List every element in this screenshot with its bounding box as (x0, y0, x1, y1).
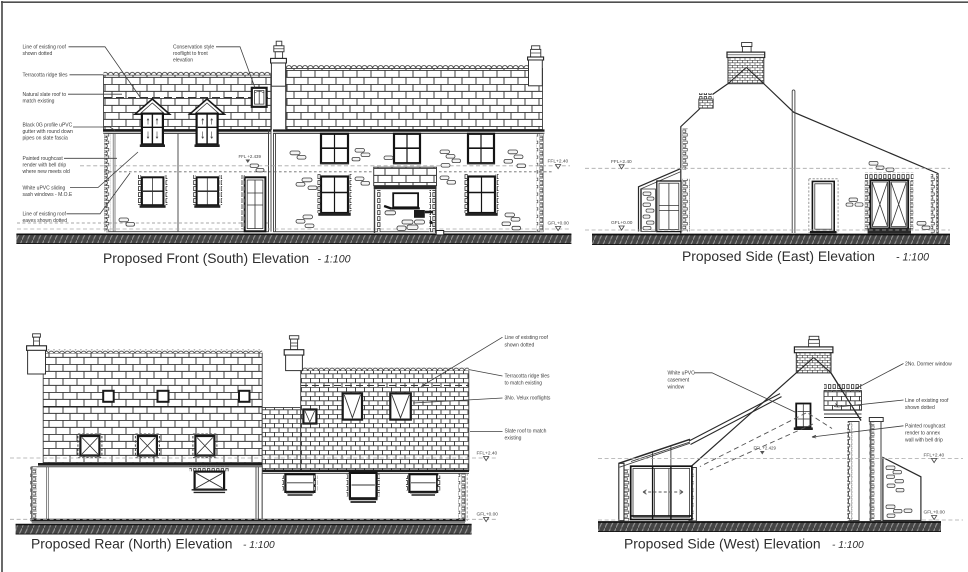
svg-text:Natural slate roof to: Natural slate roof to (23, 92, 67, 98)
svg-text:GFL+0.00: GFL+0.00 (611, 220, 633, 226)
svg-text:FFL+2.40: FFL+2.40 (611, 159, 632, 165)
svg-text:Line of existing roof: Line of existing roof (23, 45, 67, 51)
svg-text:shown dotted: shown dotted (905, 405, 935, 411)
svg-text:FFL +2.439: FFL +2.439 (239, 154, 262, 159)
svg-text:Line of existing roof: Line of existing roof (505, 335, 549, 341)
svg-text:window: window (668, 385, 685, 391)
svg-text:FFL+2.40: FFL+2.40 (924, 453, 945, 459)
svg-text:GFL+0.00: GFL+0.00 (477, 512, 499, 518)
svg-text:Proposed Rear (North) Elevatio: Proposed Rear (North) Elevation (31, 536, 233, 552)
svg-text:rooflight to front: rooflight to front (173, 51, 208, 57)
svg-text:Terracotta ridge tiles: Terracotta ridge tiles (23, 73, 69, 79)
svg-text:sash windows - M.O.E: sash windows - M.O.E (23, 192, 73, 198)
svg-text:GFL+0.00: GFL+0.00 (548, 221, 570, 227)
svg-text:eaves shown dotted: eaves shown dotted (23, 218, 68, 224)
svg-text:render with bell drip: render with bell drip (23, 163, 67, 169)
svg-text:Conservation style: Conservation style (173, 45, 214, 51)
svg-text:match existing: match existing (23, 99, 55, 105)
svg-text:FFL+2.40: FFL+2.40 (548, 159, 569, 165)
svg-text:- 1:100: - 1:100 (896, 252, 929, 264)
svg-text:Proposed Side (West) Elevation: Proposed Side (West) Elevation (624, 536, 821, 552)
svg-text:3No. Velux rooflights: 3No. Velux rooflights (505, 396, 551, 402)
svg-text:render to annex: render to annex (905, 431, 941, 437)
svg-text:shown dotted: shown dotted (23, 51, 53, 57)
svg-text:White uPVC sliding: White uPVC sliding (23, 186, 66, 192)
svg-text:- 1:100: - 1:100 (243, 540, 275, 551)
svg-text:shown dotted: shown dotted (505, 343, 535, 349)
svg-text:- 1:100: - 1:100 (832, 540, 864, 551)
svg-text:FFL +2.429: FFL +2.429 (754, 446, 777, 451)
svg-text:Line of existing roof: Line of existing roof (905, 398, 949, 404)
svg-text:existing: existing (505, 436, 522, 442)
svg-text:Proposed Side (East) Elevation: Proposed Side (East) Elevation (682, 248, 875, 264)
svg-text:gutter with round down: gutter with round down (23, 129, 74, 135)
svg-text:White uPVC: White uPVC (668, 371, 696, 377)
svg-text:casement: casement (668, 378, 690, 384)
svg-text:Black 0G profile uPVC: Black 0G profile uPVC (23, 123, 73, 129)
svg-text:FFL+2.40: FFL+2.40 (477, 451, 498, 457)
svg-text:Slate roof to match: Slate roof to match (505, 429, 547, 435)
svg-text:elevation: elevation (173, 58, 193, 64)
svg-text:where new meets old: where new meets old (23, 169, 70, 175)
svg-text:wall with bell drip: wall with bell drip (905, 438, 943, 444)
svg-text:Painted roughcast: Painted roughcast (905, 424, 946, 430)
svg-text:2No. Dormer window: 2No. Dormer window (905, 362, 952, 368)
svg-text:- 1:100: - 1:100 (318, 254, 351, 266)
svg-text:pipes on slate fascia: pipes on slate fascia (23, 136, 69, 142)
svg-text:Painted roughcast: Painted roughcast (23, 156, 64, 162)
svg-text:GFL+0.00: GFL+0.00 (924, 510, 946, 516)
svg-text:Terracotta ridge tiles: Terracotta ridge tiles (505, 374, 551, 380)
svg-text:to match existing: to match existing (505, 381, 543, 387)
svg-text:Proposed Front (South) Elevati: Proposed Front (South) Elevation (103, 250, 309, 266)
svg-text:Line of existing roof: Line of existing roof (23, 212, 67, 218)
